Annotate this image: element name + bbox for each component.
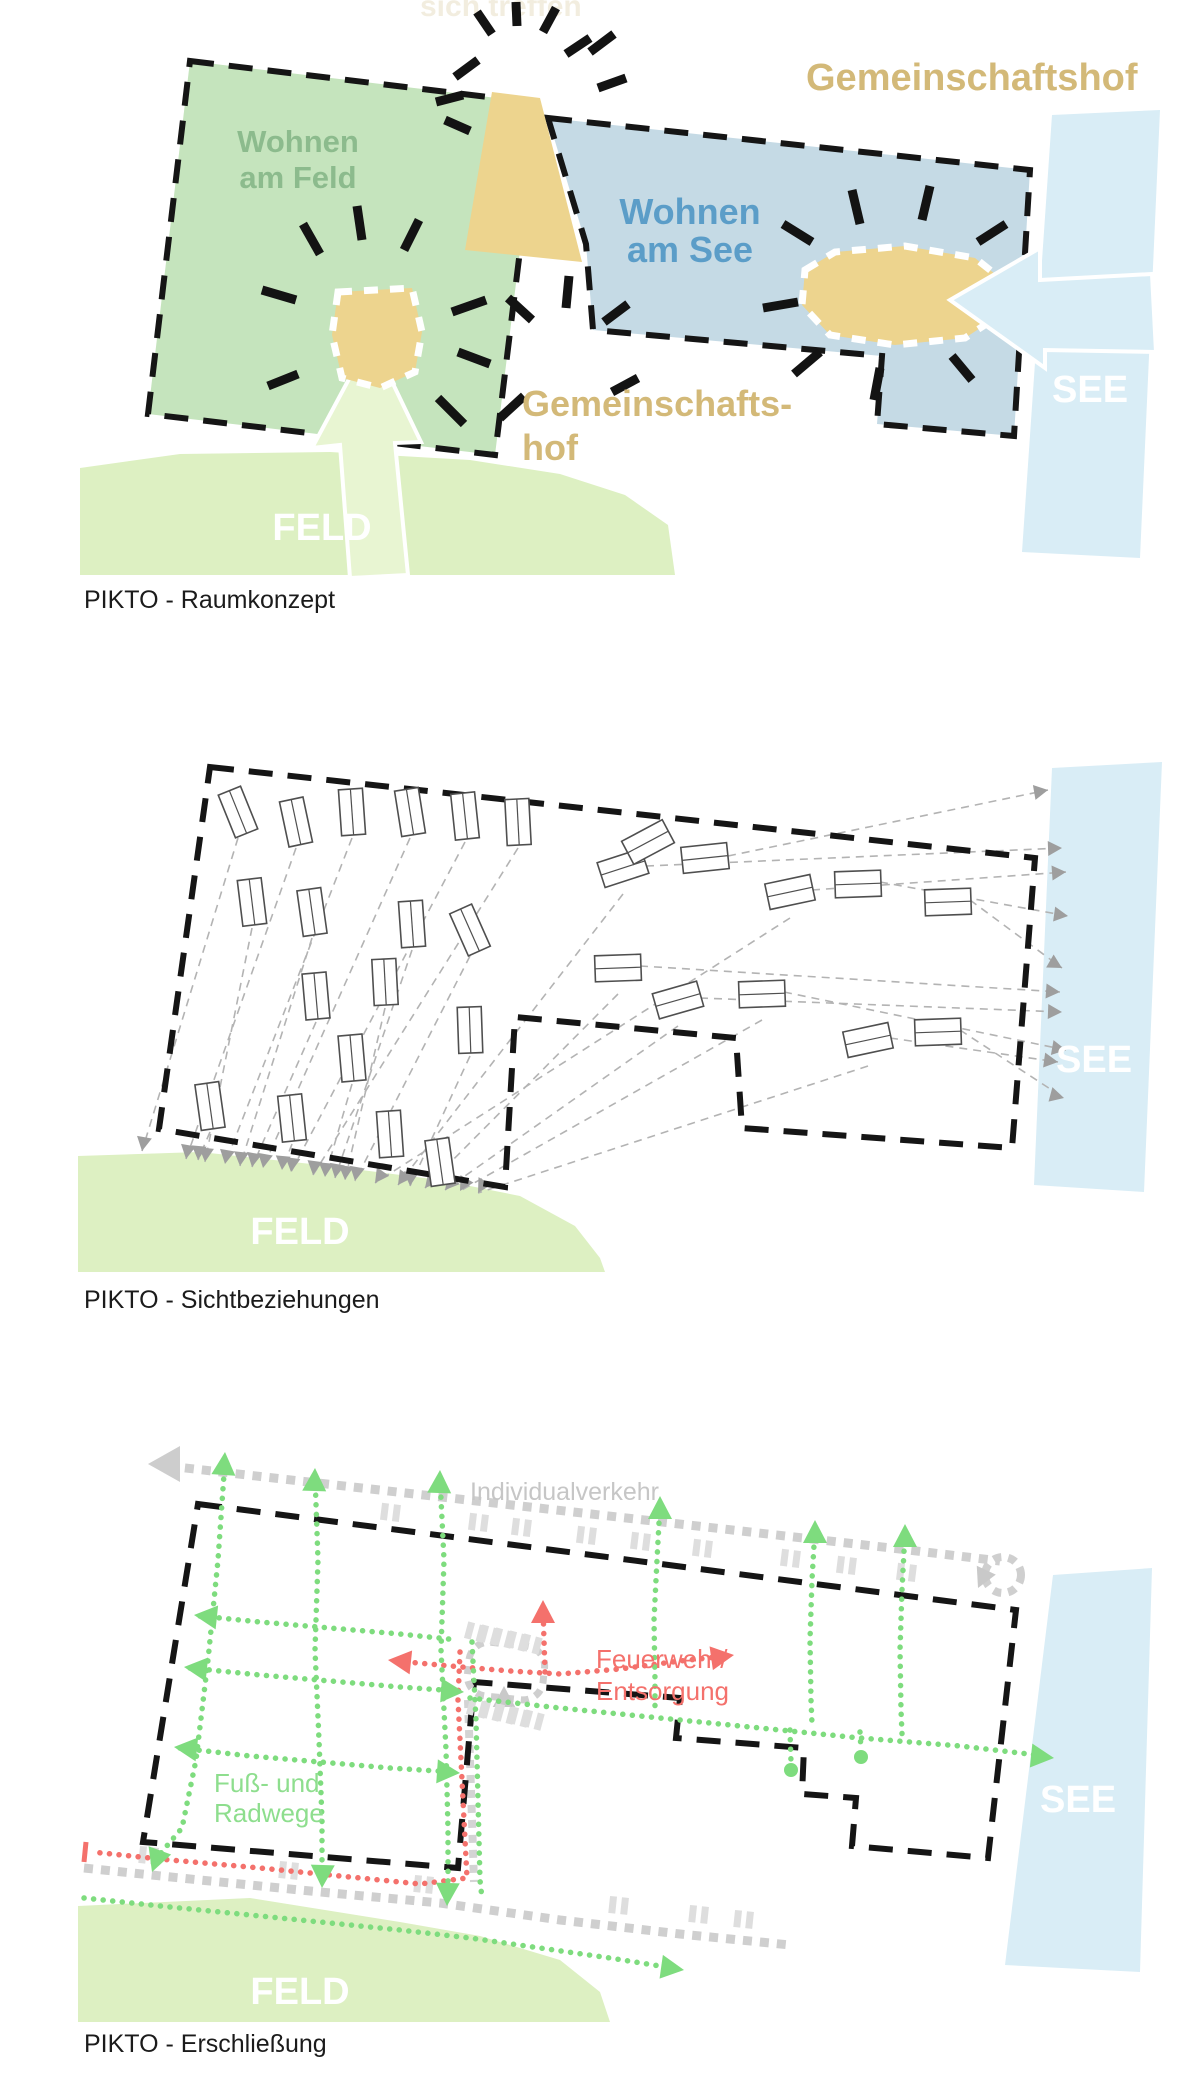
page: sich treffen [0, 0, 1200, 2089]
label-see-3: SEE [1040, 1779, 1116, 1821]
label-fusswege-2: Radwege [214, 1798, 324, 1828]
caption-raumkonzept: PIKTO - Raumkonzept [84, 586, 335, 614]
pikto-diagrams: sich treffen [0, 0, 1200, 2089]
label-wohnen-am-see: Wohnen [619, 191, 760, 232]
label-feuerwehr-2: Entsorgung [596, 1676, 729, 1706]
label-individualverkehr: Individualverkehr [470, 1478, 659, 1506]
courtyard-feld [332, 288, 422, 388]
green-arrowheads [141, 1451, 1056, 1982]
label-feuerwehr: Feuerwehr/ [596, 1644, 728, 1674]
label-wohnen-am-feld: Wohnen [237, 124, 359, 159]
figure-sichtbeziehungen: SEE FELD PIKTO - Sichtbeziehungen [78, 762, 1162, 1314]
label-feld-2: FELD [250, 1211, 349, 1253]
label-gemeinschaftshof-top: Gemeinschaftshof [806, 57, 1138, 99]
label-wohnen-am-feld-2: am Feld [239, 160, 356, 195]
label-see-2: SEE [1056, 1039, 1132, 1081]
caption-erschliessung: PIKTO - Erschließung [84, 2030, 327, 2058]
label-feld-3: FELD [250, 1971, 349, 2013]
lake-shape-3 [1005, 1568, 1152, 1972]
label-fusswege: Fuß- und [214, 1768, 320, 1798]
label-gemeinschaftshof-mid: Gemeinschafts- [522, 383, 792, 424]
figure-erschliessung: Individualverkehr Feuerwehr/ Entsorgung … [78, 1446, 1152, 2058]
buildings-see-oriented [595, 820, 972, 1058]
caption-sichtbeziehungen: PIKTO - Sichtbeziehungen [84, 1286, 380, 1314]
label-see-1: SEE [1052, 369, 1128, 411]
label-wohnen-am-see-2: am See [627, 229, 753, 270]
route-feuerwehr [84, 1600, 736, 1884]
figure-raumkonzept: sich treffen [80, 0, 1160, 614]
label-feld-1: FELD [272, 507, 371, 549]
label-gemeinschaftshof-mid-2: hof [522, 427, 579, 468]
road-individualverkehr [148, 1446, 1021, 1593]
courtyard-loop [464, 1621, 547, 1730]
buildings-feld-oriented [195, 786, 531, 1186]
lake-shape-2 [1034, 762, 1162, 1192]
